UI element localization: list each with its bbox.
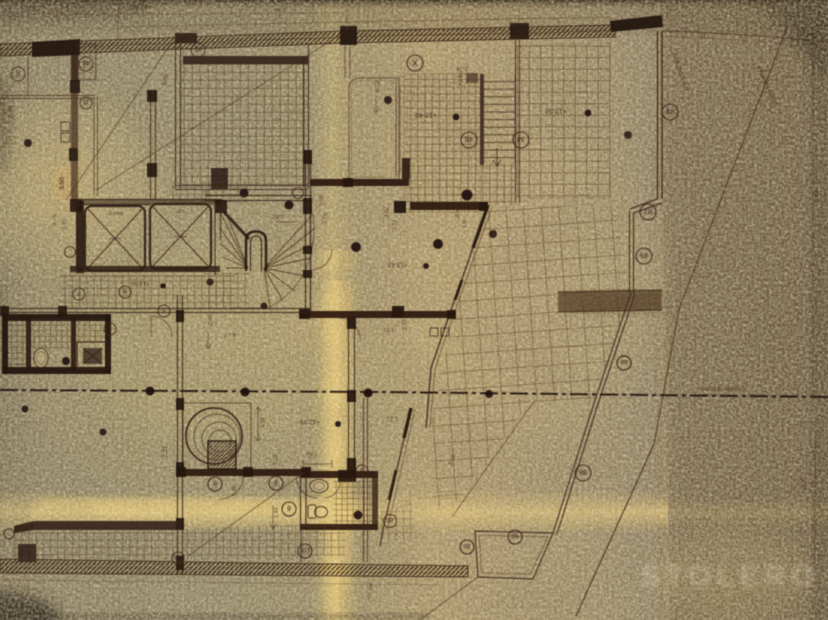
svg-text:68: 68 (511, 532, 519, 539)
svg-text:89: 89 (640, 251, 648, 258)
svg-text:1.11: 1.11 (384, 326, 394, 332)
svg-text:3.52: 3.52 (384, 206, 390, 218)
svg-text:1.82: 1.82 (272, 213, 284, 219)
svg-text:5.75: 5.75 (52, 214, 58, 226)
svg-text:5.29: 5.29 (232, 485, 238, 496)
svg-text:+12.35: +12.35 (300, 418, 320, 425)
svg-text:5.20: 5.20 (802, 477, 808, 489)
svg-text:45: 45 (194, 45, 202, 52)
svg-text:12.00: 12.00 (130, 3, 148, 10)
svg-text:49: 49 (666, 107, 674, 114)
svg-text:+12.40: +12.40 (415, 111, 437, 118)
svg-text:2.21: 2.21 (273, 454, 279, 465)
svg-text:1.11: 1.11 (392, 220, 398, 230)
svg-text:11B: 11B (173, 554, 182, 560)
svg-text:3.06: 3.06 (319, 195, 325, 206)
svg-text:87: 87 (644, 207, 652, 214)
svg-text:5.20: 5.20 (814, 190, 820, 202)
svg-text:4.77: 4.77 (224, 331, 236, 337)
svg-text:31: 31 (82, 98, 89, 104)
svg-text:3.45: 3.45 (62, 219, 68, 230)
svg-text:ΦΩΤΑΓ.: ΦΩΤΑΓ. (107, 211, 123, 216)
svg-text:+13.43: +13.43 (388, 261, 408, 268)
svg-text:46: 46 (82, 59, 90, 66)
svg-text:X: X (15, 69, 20, 76)
svg-text:ΓΡΑΜΜΗ ΤΟΜΗΣ Α: ΓΡΑΜΜΗ ΤΟΜΗΣ Α (700, 385, 745, 391)
svg-text:+2.60: +2.60 (458, 70, 464, 86)
svg-text:1.75: 1.75 (323, 213, 329, 224)
svg-text:8: 8 (287, 504, 291, 511)
svg-text:3.50: 3.50 (59, 177, 66, 190)
svg-text:34: 34 (517, 135, 525, 142)
svg-text:3.52: 3.52 (455, 206, 461, 218)
svg-text:88: 88 (579, 468, 587, 475)
svg-text:9: 9 (213, 479, 217, 486)
svg-text:2.40: 2.40 (208, 314, 214, 326)
svg-text:1.50: 1.50 (260, 417, 266, 428)
svg-text:1.8: 1.8 (462, 220, 468, 228)
svg-text:1.94: 1.94 (274, 507, 280, 518)
svg-text:X: X (412, 58, 418, 67)
svg-text:2.32: 2.32 (402, 319, 408, 330)
svg-text:2.36: 2.36 (8, 106, 14, 118)
svg-text:1.24: 1.24 (456, 65, 468, 71)
svg-text:86: 86 (463, 542, 471, 549)
svg-text:+12.50: +12.50 (545, 107, 567, 114)
svg-text:2.21: 2.21 (162, 445, 169, 458)
svg-text:88: 88 (620, 358, 628, 365)
svg-text:STOLERO: STOLERO (640, 560, 819, 593)
svg-text:1.21: 1.21 (386, 415, 398, 421)
svg-text:9: 9 (274, 478, 278, 485)
svg-text:5.95: 5.95 (175, 209, 184, 214)
svg-text:7.61: 7.61 (306, 451, 317, 457)
svg-text:6.03: 6.03 (375, 80, 381, 92)
svg-text:46: 46 (465, 135, 473, 142)
